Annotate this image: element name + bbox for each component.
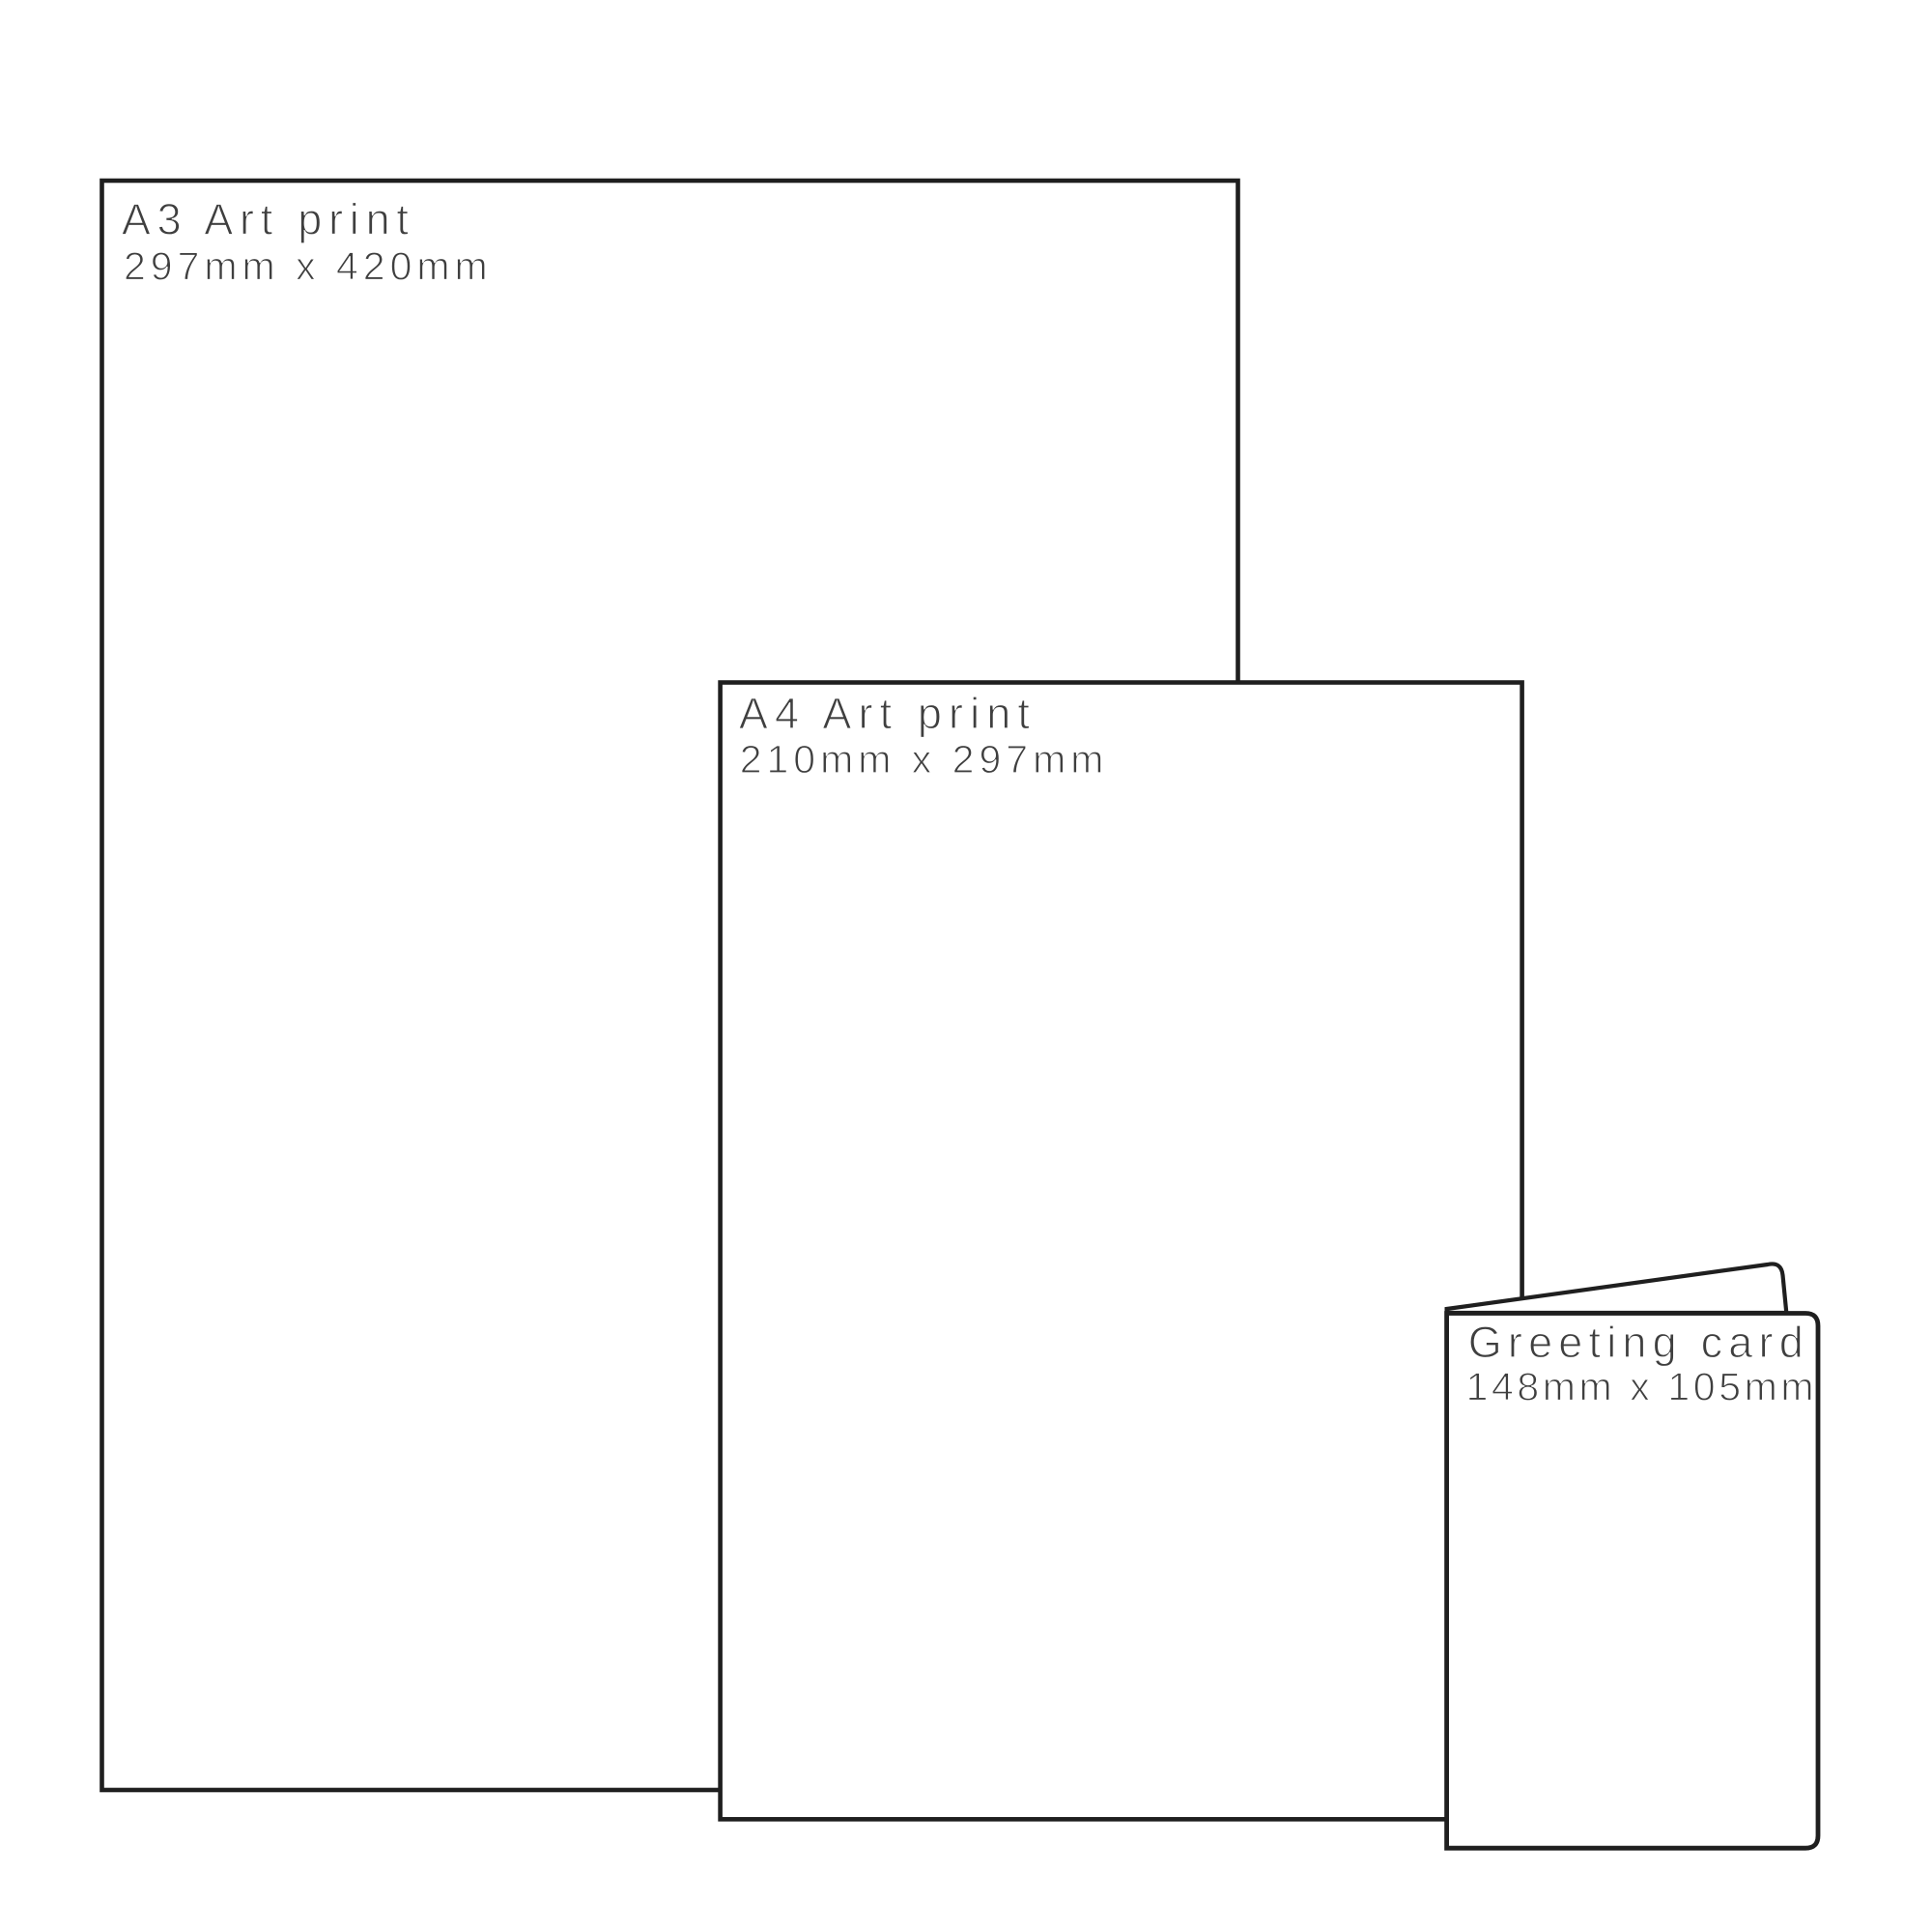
svg-text:A3 Art print: A3 Art print	[122, 195, 415, 244]
svg-text:A4 Art print: A4 Art print	[739, 689, 1037, 738]
svg-text:210mm x 297mm: 210mm x 297mm	[740, 737, 1109, 781]
svg-text:Greeting card: Greeting card	[1468, 1318, 1809, 1367]
svg-text:297mm x 420mm: 297mm x 420mm	[124, 244, 493, 289]
svg-text:148mm x 105mm: 148mm x 105mm	[1466, 1364, 1818, 1408]
